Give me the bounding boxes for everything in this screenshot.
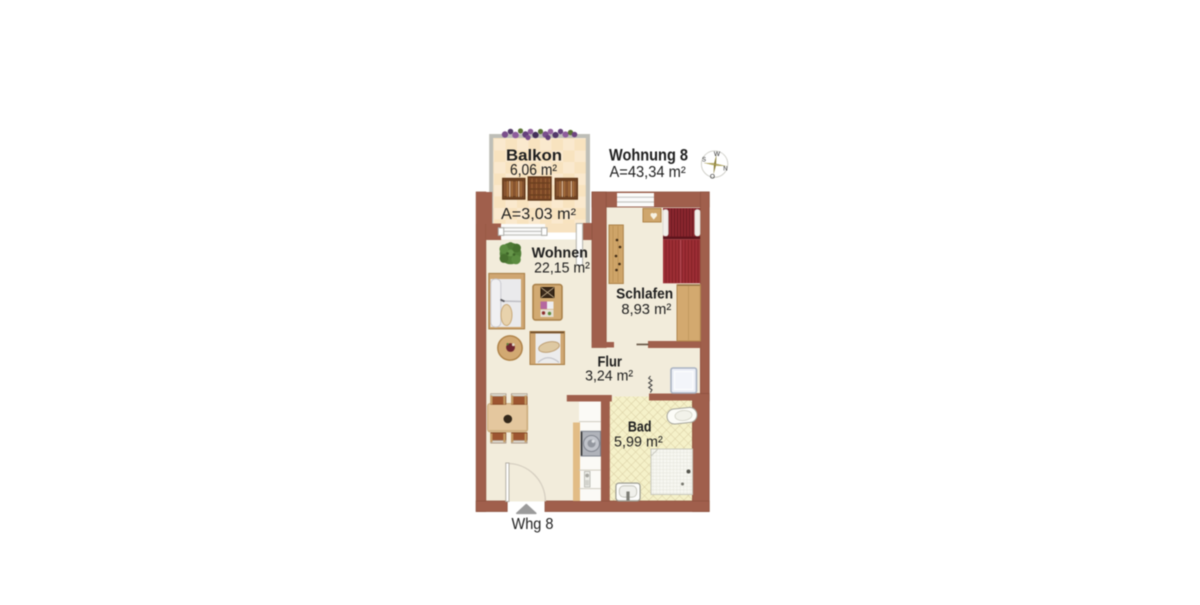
svg-text:W: W: [714, 151, 721, 158]
svg-text:3,24 m²: 3,24 m²: [585, 368, 633, 385]
svg-text:8,93 m²: 8,93 m²: [621, 301, 671, 318]
svg-text:5,99 m²: 5,99 m²: [614, 434, 663, 451]
svg-text:A=43,34 m²: A=43,34 m²: [610, 164, 686, 181]
svg-text:S: S: [702, 158, 706, 164]
svg-text:Whg 8: Whg 8: [512, 516, 554, 533]
svg-text:N: N: [723, 167, 727, 173]
svg-text:Wohnung 8: Wohnung 8: [609, 146, 688, 165]
svg-text:6,06 m²: 6,06 m²: [510, 162, 557, 179]
svg-text:O: O: [710, 174, 715, 181]
svg-text:22,15 m²: 22,15 m²: [534, 260, 590, 277]
svg-text:A=3,03 m²: A=3,03 m²: [501, 206, 576, 223]
